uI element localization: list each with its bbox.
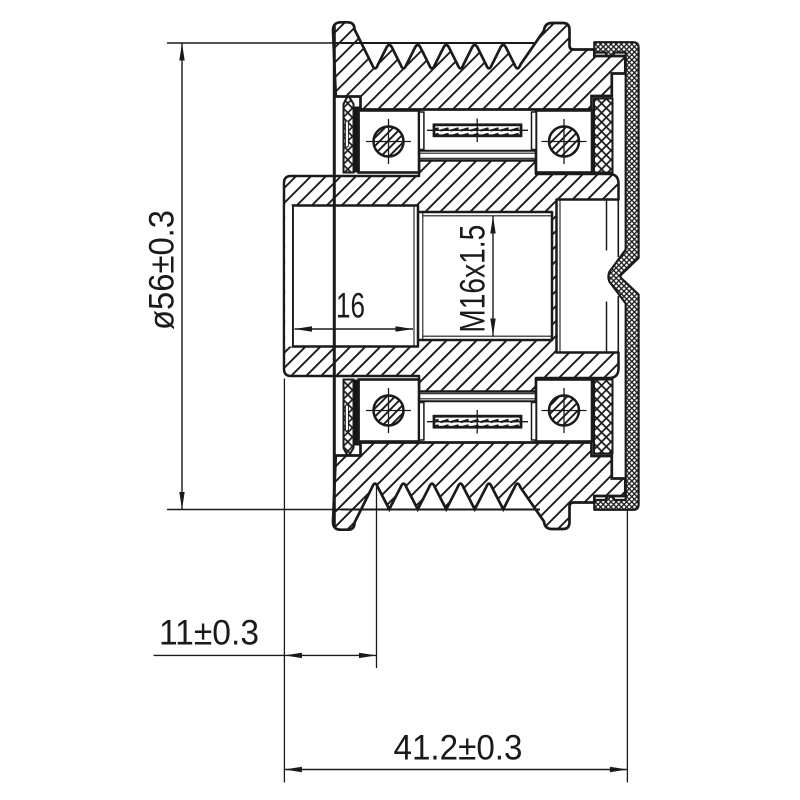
svg-text:11±0.3: 11±0.3 (159, 614, 259, 653)
svg-text:ø56±0.3: ø56±0.3 (143, 210, 182, 330)
svg-text:41.2±0.3: 41.2±0.3 (394, 729, 523, 768)
svg-text:16: 16 (336, 287, 365, 326)
svg-text:M16x1.5: M16x1.5 (454, 225, 493, 333)
